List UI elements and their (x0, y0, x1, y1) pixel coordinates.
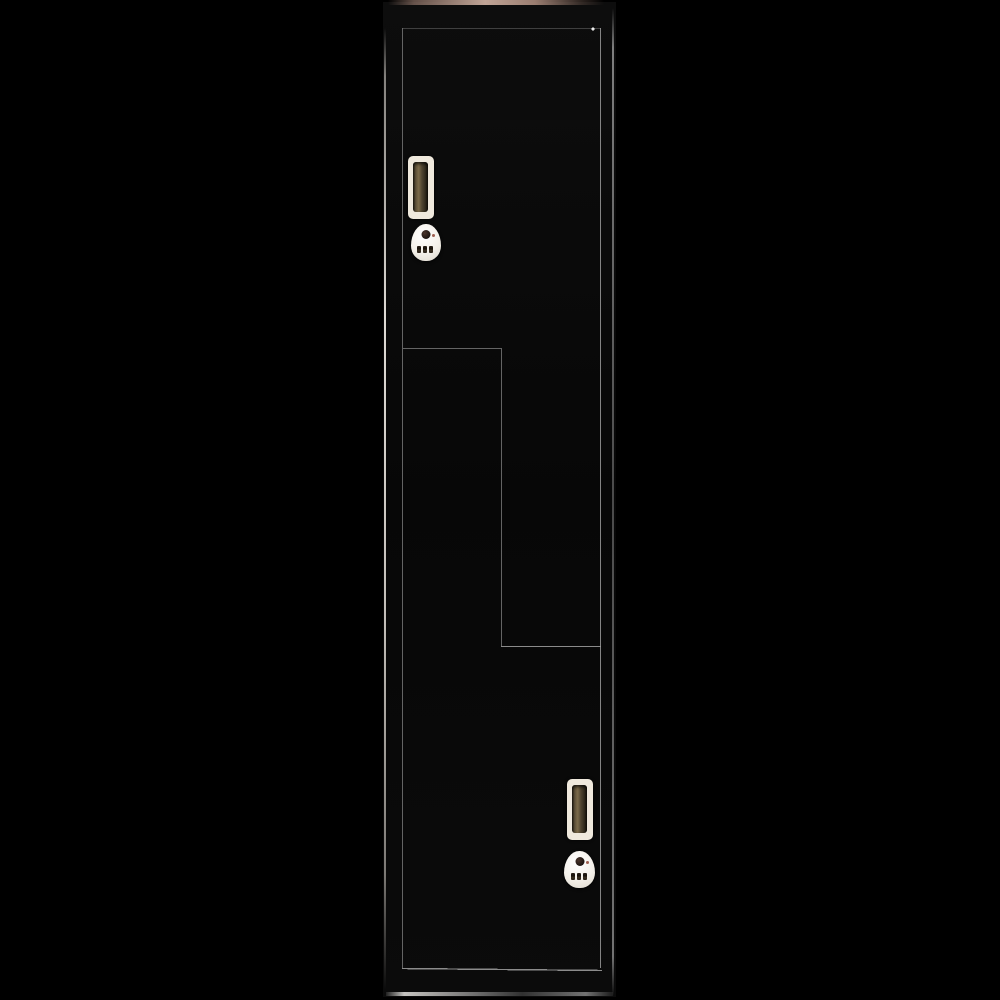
upper-handle-slot (413, 162, 428, 212)
upper-door-handle[interactable] (408, 156, 434, 219)
upper-lock-dials (417, 246, 433, 253)
door-bottom-seam (402, 969, 602, 971)
combination-dial[interactable] (583, 873, 587, 880)
corner-glint (591, 27, 594, 30)
upper-door-combination-lock[interactable] (411, 224, 441, 261)
lock-knob-icon (422, 230, 431, 239)
combination-dial[interactable] (417, 246, 421, 253)
lower-handle-slot (572, 785, 587, 833)
product-photo-scene (0, 0, 1000, 1000)
lock-knob-icon (575, 857, 584, 866)
lower-lock-dials (571, 873, 587, 880)
combination-dial[interactable] (429, 246, 433, 253)
combination-dial[interactable] (423, 246, 427, 253)
combination-dial[interactable] (571, 873, 575, 880)
lower-door-combination-lock[interactable] (564, 851, 595, 888)
door-seam-lines (0, 0, 1000, 1000)
lower-door-handle[interactable] (567, 779, 593, 840)
combination-dial[interactable] (577, 873, 581, 880)
lock-reset-dot-icon (432, 234, 435, 237)
lock-reset-dot-icon (586, 861, 589, 864)
